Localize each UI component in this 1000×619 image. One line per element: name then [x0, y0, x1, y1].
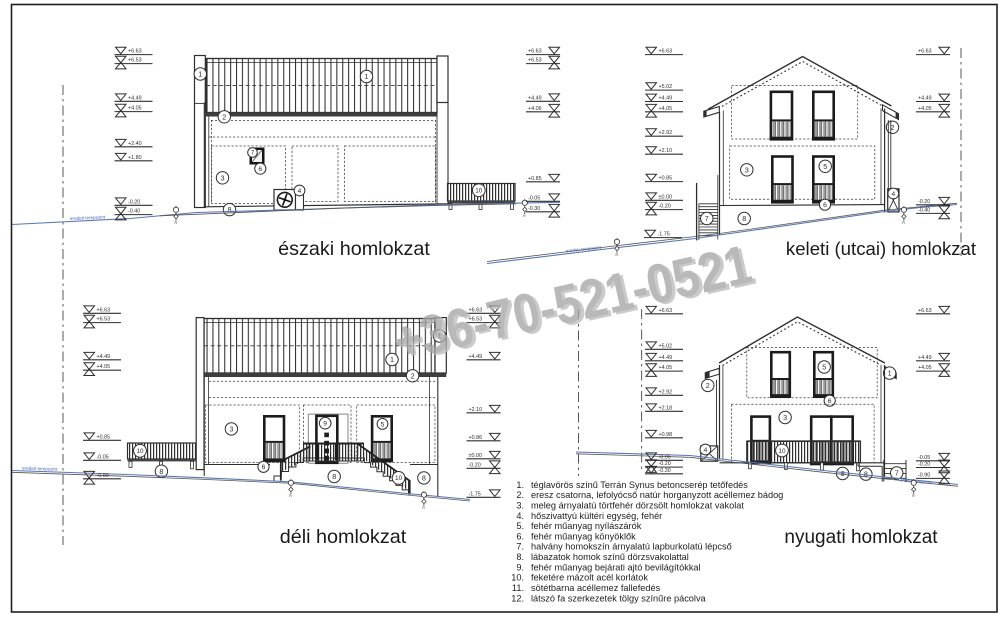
- svg-text:4.: 4.: [516, 511, 524, 521]
- svg-text:+5.02: +5.02: [659, 84, 673, 90]
- svg-text:+6.53: +6.53: [128, 58, 142, 64]
- svg-text:-0.20: -0.20: [128, 199, 140, 205]
- svg-text:4: 4: [891, 191, 895, 198]
- svg-text:+4.05: +4.05: [128, 106, 142, 112]
- svg-text:9.: 9.: [516, 562, 524, 572]
- svg-text:8: 8: [841, 469, 845, 478]
- svg-text:+0.98: +0.98: [659, 432, 673, 438]
- svg-text:10: 10: [475, 188, 483, 195]
- svg-text:8.: 8.: [516, 552, 524, 562]
- svg-text:5: 5: [381, 421, 385, 428]
- svg-text:1: 1: [888, 369, 892, 378]
- svg-text:-0.05: -0.05: [97, 454, 109, 460]
- svg-text:lábazatok homok színű dörzsvak: lábazatok homok színű dörzsvakolattal: [531, 552, 689, 562]
- svg-text:12.: 12.: [511, 593, 524, 603]
- svg-text:+6.53: +6.53: [97, 317, 111, 323]
- svg-text:3.: 3.: [516, 500, 524, 510]
- svg-text:+4.05: +4.05: [659, 106, 673, 112]
- svg-text:sötétbarna acéllemez fallefedé: sötétbarna acéllemez fallefedés: [531, 583, 661, 593]
- svg-text:+1.80: +1.80: [128, 155, 142, 161]
- svg-text:+6.63: +6.63: [97, 307, 111, 313]
- svg-text:+4.49: +4.49: [918, 355, 932, 361]
- svg-text:+0.85: +0.85: [97, 434, 111, 440]
- svg-text:-1.75: -1.75: [469, 491, 481, 497]
- svg-text:+4.05: +4.05: [97, 364, 111, 370]
- svg-text:3: 3: [783, 413, 787, 422]
- svg-text:6: 6: [258, 166, 262, 173]
- svg-text:+2.92: +2.92: [659, 130, 673, 136]
- svg-text:fehér műanyag könyöklők: fehér műanyag könyöklők: [531, 531, 636, 541]
- svg-text:hőszivattyú kültéri egység, fe: hőszivattyú kültéri egység, fehér: [531, 511, 662, 521]
- svg-text:10: 10: [778, 448, 786, 455]
- svg-text:-0.20: -0.20: [659, 461, 671, 467]
- svg-text:8: 8: [422, 474, 426, 483]
- svg-text:nyugati homlokzat: nyugati homlokzat: [784, 527, 938, 548]
- svg-text:3: 3: [229, 425, 233, 434]
- svg-text:+6.63: +6.63: [528, 49, 542, 55]
- svg-text:9: 9: [323, 421, 327, 428]
- svg-text:halvány homokszín árnyalatú la: halvány homokszín árnyalatú lapburkolatú…: [531, 542, 732, 552]
- svg-text:-0.90: -0.90: [918, 472, 930, 478]
- svg-text:-0.40: -0.40: [128, 209, 140, 215]
- svg-text:+4.05: +4.05: [918, 106, 932, 112]
- svg-text:+2.10: +2.10: [659, 148, 673, 154]
- svg-text:+4.49: +4.49: [128, 95, 142, 101]
- svg-text:+2.92: +2.92: [659, 389, 673, 395]
- svg-text:2.: 2.: [516, 490, 524, 500]
- svg-text:északi homlokzat: északi homlokzat: [278, 238, 430, 260]
- svg-text:déli homlokzat: déli homlokzat: [280, 526, 407, 548]
- svg-text:8: 8: [864, 470, 868, 479]
- svg-text:+4.49: +4.49: [918, 96, 932, 102]
- svg-text:6: 6: [823, 202, 827, 209]
- svg-text:7: 7: [705, 214, 709, 223]
- svg-text:11.: 11.: [512, 583, 524, 593]
- svg-text:téglavörös színű Terrán Synus: téglavörös színű Terrán Synus betoncseré…: [531, 480, 748, 490]
- svg-text:5: 5: [823, 162, 827, 171]
- svg-text:5: 5: [822, 363, 826, 372]
- svg-text:+5.02: +5.02: [659, 343, 673, 349]
- svg-text:-0.20: -0.20: [918, 199, 930, 205]
- svg-text:2: 2: [222, 112, 226, 121]
- svg-text:+4.06: +4.06: [528, 106, 542, 112]
- svg-text:meleg árnyalatú törtfehér dörz: meleg árnyalatú törtfehér dörzsölt homlo…: [531, 500, 744, 510]
- svg-text:-0.20: -0.20: [659, 204, 671, 210]
- svg-text:+0.86: +0.86: [469, 435, 483, 441]
- svg-text:-0.20: -0.20: [918, 462, 930, 468]
- svg-text:10: 10: [136, 448, 144, 455]
- svg-text:1.: 1.: [516, 480, 524, 490]
- svg-text:3: 3: [221, 173, 225, 182]
- svg-text:8: 8: [332, 472, 336, 481]
- svg-text:7.: 7.: [516, 542, 524, 552]
- svg-text:keleti (utcai) homlokzat: keleti (utcai) homlokzat: [786, 238, 977, 259]
- svg-text:6.: 6.: [516, 531, 524, 541]
- svg-text:-0.05: -0.05: [528, 195, 540, 201]
- svg-text:7: 7: [895, 469, 899, 478]
- svg-text:+6.63: +6.63: [128, 49, 142, 55]
- svg-text:+4.49: +4.49: [659, 96, 673, 102]
- svg-text:-0.90: -0.90: [97, 473, 109, 479]
- svg-text:±0.00: ±0.00: [469, 453, 482, 459]
- svg-text:látszó fa szerkezetek tölgy sz: látszó fa szerkezetek tölgy színűre páco…: [531, 593, 707, 603]
- svg-text:-0.30: -0.30: [528, 206, 540, 212]
- svg-text:±0.00: ±0.00: [659, 194, 672, 200]
- svg-text:-0.05: -0.05: [659, 454, 671, 460]
- svg-text:-0.30: -0.30: [659, 468, 671, 474]
- svg-text:+4.49: +4.49: [659, 355, 673, 361]
- svg-text:-0.20: -0.20: [469, 462, 481, 468]
- svg-text:5.: 5.: [516, 521, 524, 531]
- svg-text:+2.18: +2.18: [659, 405, 673, 411]
- svg-text:+4.49: +4.49: [528, 95, 542, 101]
- svg-text:feketére mázolt acél korlátok: feketére mázolt acél korlátok: [531, 573, 648, 583]
- svg-text:+6.63: +6.63: [659, 49, 673, 55]
- svg-text:+4.49: +4.49: [97, 354, 111, 360]
- svg-text:10: 10: [395, 475, 403, 482]
- svg-text:10.: 10.: [511, 573, 524, 583]
- svg-text:fehér műanyag nyílászárók: fehér műanyag nyílászárók: [531, 521, 642, 531]
- svg-text:+6.63: +6.63: [918, 308, 932, 314]
- svg-text:-1.75: -1.75: [658, 232, 670, 238]
- svg-text:+4.05: +4.05: [918, 365, 932, 371]
- svg-text:-0.40: -0.40: [918, 207, 930, 213]
- svg-text:eresz csatorna, lefolyócső na: eresz csatorna, lefolyócső natúr horgany…: [531, 490, 783, 500]
- svg-text:1: 1: [198, 70, 202, 79]
- svg-text:+2.10: +2.10: [469, 407, 483, 413]
- svg-text:4: 4: [298, 188, 302, 195]
- svg-text:+6.63: +6.63: [918, 49, 932, 55]
- svg-text:8: 8: [159, 467, 163, 476]
- svg-text:+0.85: +0.85: [528, 176, 542, 182]
- svg-text:+6.53: +6.53: [528, 58, 542, 64]
- svg-text:8: 8: [742, 214, 746, 223]
- svg-text:3: 3: [745, 165, 749, 174]
- svg-text:+0.85: +0.85: [659, 176, 673, 182]
- svg-text:6: 6: [262, 464, 266, 471]
- svg-text:1: 1: [390, 355, 394, 364]
- svg-text:2: 2: [706, 381, 710, 390]
- svg-text:fehér műanyag bejárati ajtó be: fehér műanyag bejárati ajtó bevilágítókk…: [531, 562, 701, 572]
- svg-text:4: 4: [704, 447, 708, 454]
- svg-text:+2.40: +2.40: [128, 141, 142, 147]
- svg-text:+4.05: +4.05: [659, 365, 673, 371]
- svg-text:1: 1: [365, 72, 369, 81]
- svg-text:-0.05: -0.05: [918, 455, 930, 461]
